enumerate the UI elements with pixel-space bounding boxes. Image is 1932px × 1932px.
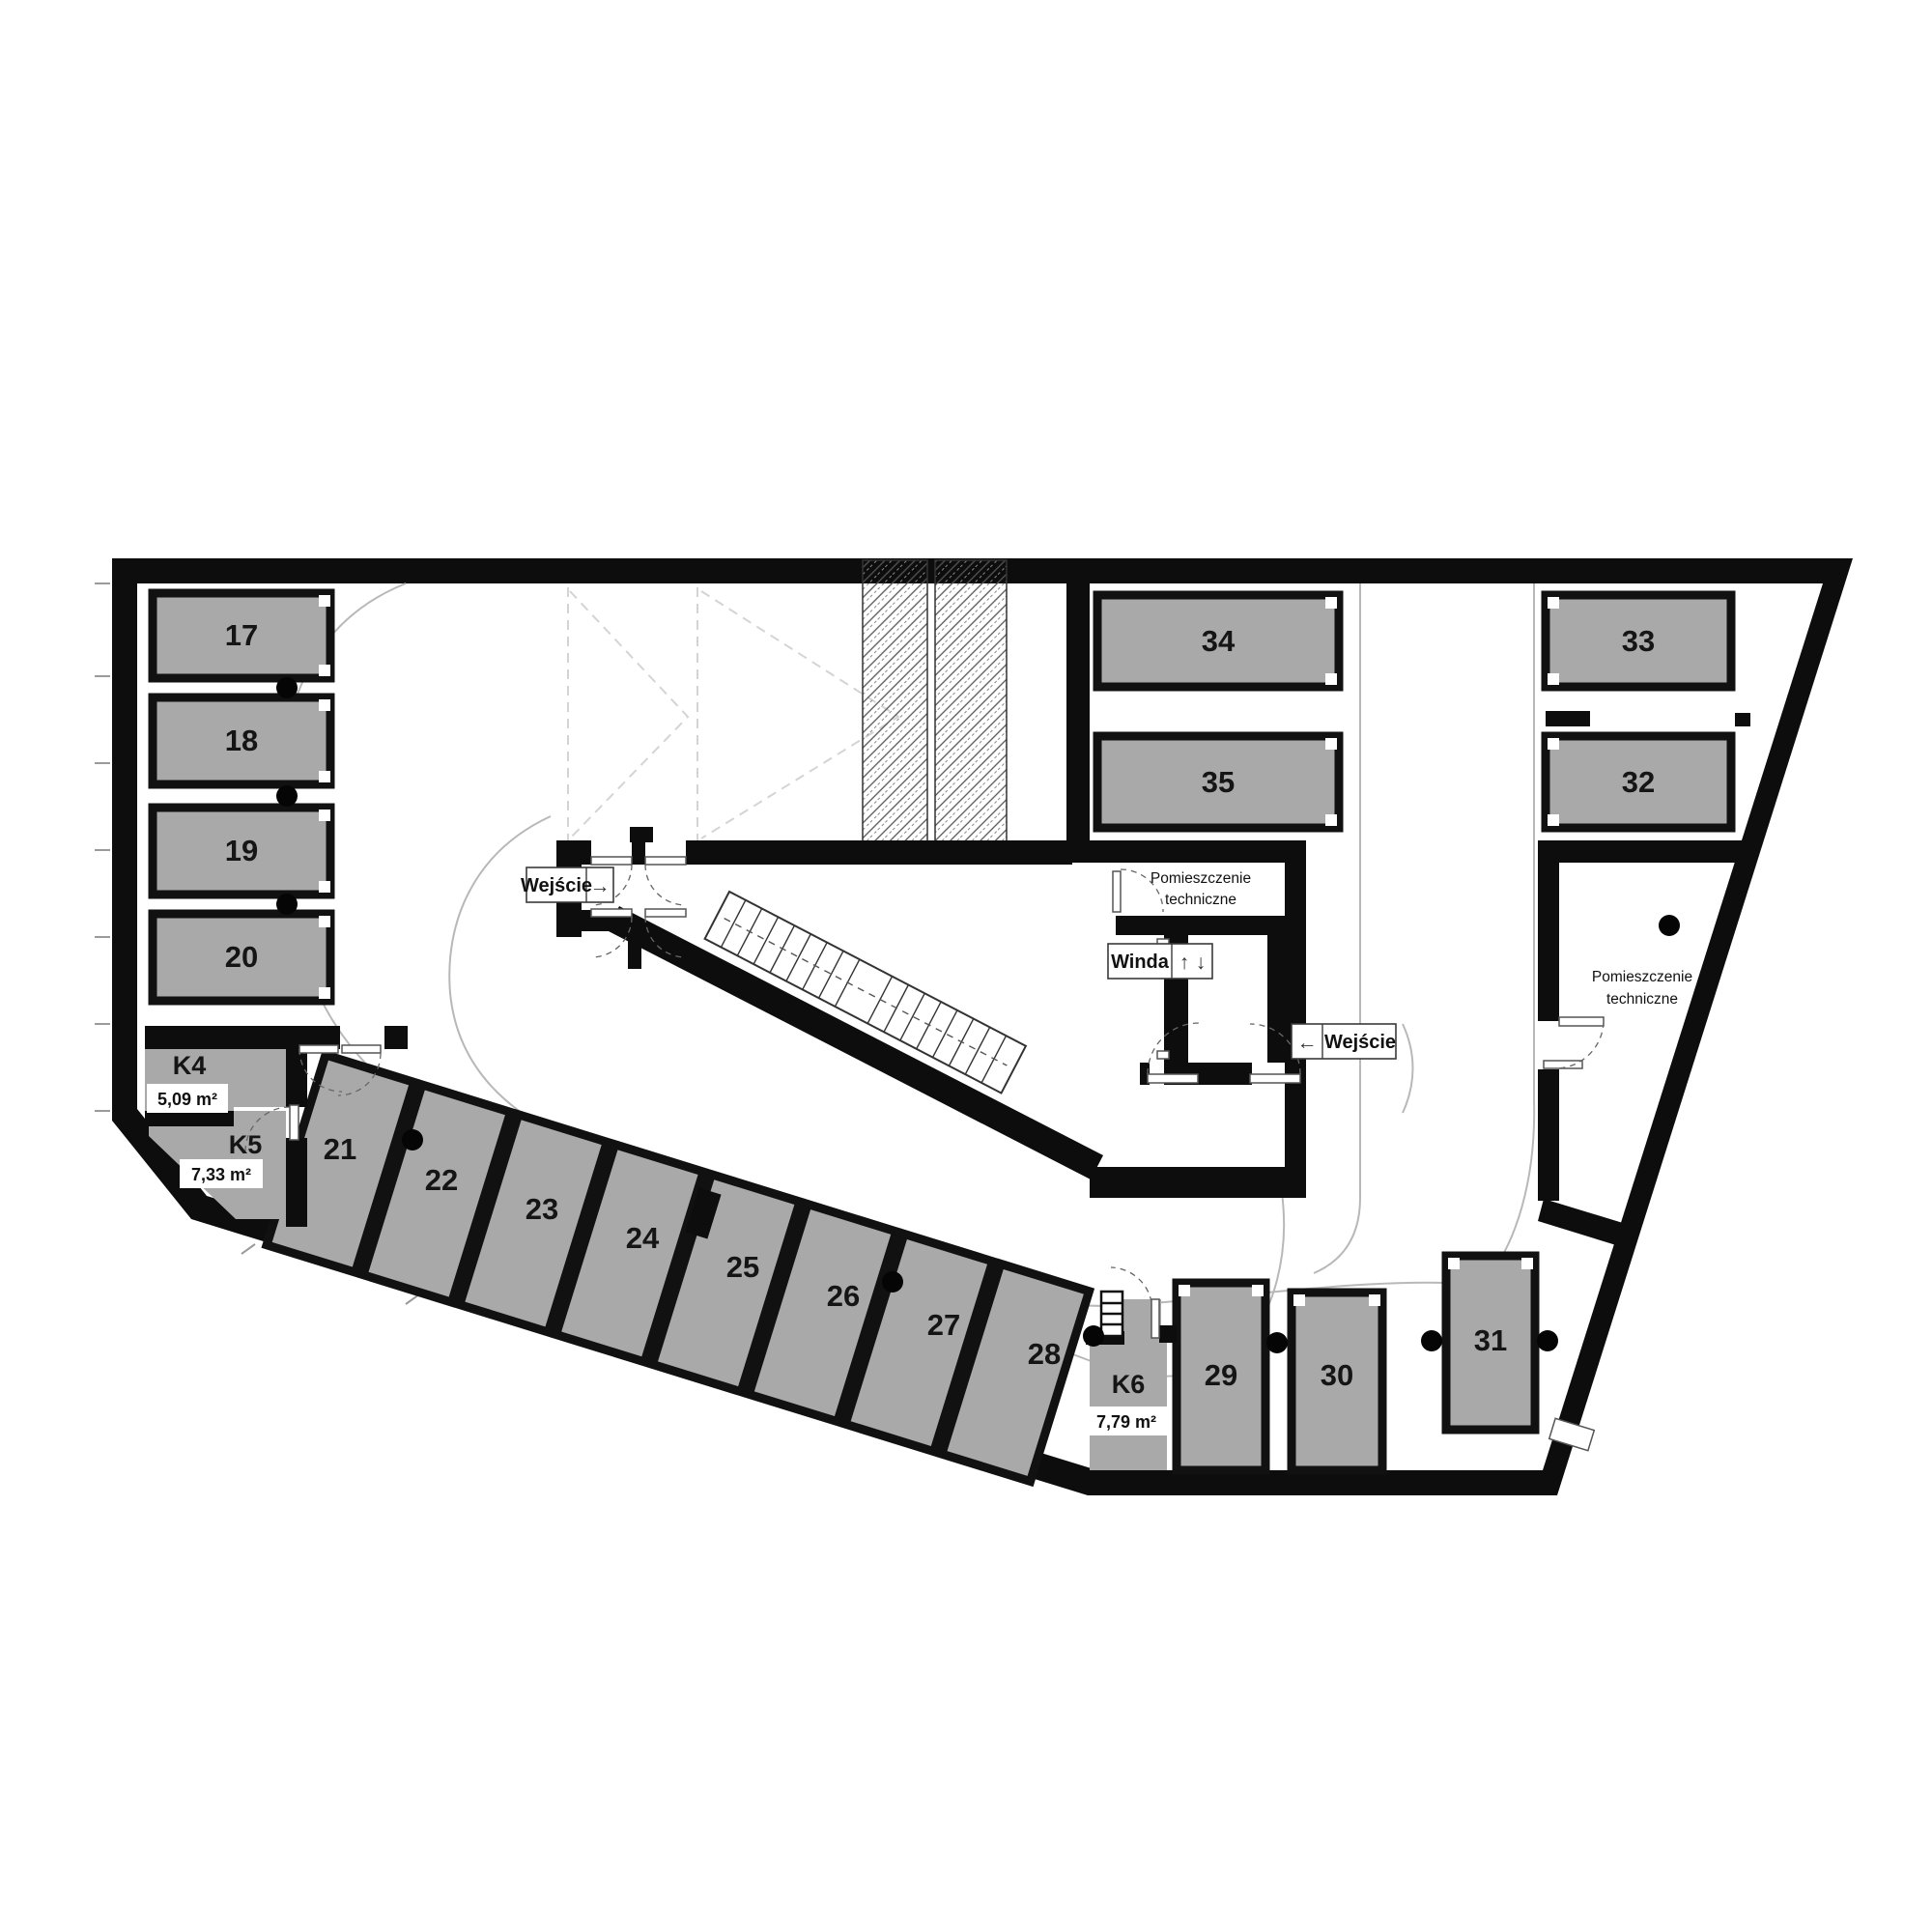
spot-label: 34: [1202, 624, 1236, 658]
spot-label: 25: [726, 1250, 759, 1284]
technical-room-right-label-2: techniczne: [1606, 991, 1678, 1008]
hatched-wall-left: [863, 560, 927, 842]
arrow-right-icon: →: [590, 875, 611, 897]
elevator-label-text: Winda: [1111, 952, 1170, 973]
door-leaf: [1148, 1074, 1198, 1083]
spot-label: 32: [1622, 765, 1655, 799]
parking-spot-35[interactable]: 35: [1097, 736, 1339, 828]
core-top-separator-wall: [1066, 560, 1090, 846]
arrow-up-icon: ↑: [1179, 952, 1190, 974]
column-dot: [882, 1271, 903, 1293]
entrance-right-text: Wejście: [1324, 1032, 1396, 1053]
parking-spot-31[interactable]: 31: [1446, 1256, 1535, 1430]
parking-spot-32[interactable]: 32: [1546, 736, 1731, 828]
area-value: 7,79 m²: [1096, 1412, 1156, 1432]
column-dot: [1659, 915, 1680, 936]
parking-spot-34[interactable]: 34: [1097, 595, 1339, 687]
door-leaf: [1151, 1299, 1159, 1338]
wall-stub: [1735, 713, 1750, 726]
spot-label: 28: [1028, 1337, 1061, 1371]
spot-label: 30: [1321, 1358, 1353, 1392]
door-leaf: [290, 1105, 298, 1140]
area-value: 7,33 m²: [191, 1165, 251, 1184]
technical-room-core-label-1: Pomieszczenie: [1151, 870, 1251, 887]
parking-spot-17[interactable]: 17: [153, 593, 330, 678]
column-dot: [276, 677, 298, 698]
spot-label: 20: [225, 940, 258, 974]
wall-stub: [1546, 711, 1590, 726]
area-value: 5,09 m²: [157, 1090, 217, 1109]
spot-label: 35: [1202, 765, 1235, 799]
entrance-label-left: Wejście →: [521, 867, 613, 902]
storage-label: K5: [229, 1130, 263, 1159]
arrow-left-icon: ←: [1297, 1032, 1318, 1054]
column-dot: [1537, 1330, 1558, 1351]
storage-label: K4: [173, 1051, 207, 1080]
spot-label: 19: [225, 834, 258, 867]
garage-floor-plan: Pomieszczenie techniczne Winda ↑ ↓ Wejśc…: [0, 0, 1932, 1932]
technical-room-right-label-1: Pomieszczenie: [1592, 969, 1692, 985]
ladder-icon: [1101, 1292, 1122, 1336]
elevator-door-mark: [1157, 1051, 1169, 1059]
column-dot: [1083, 1325, 1104, 1347]
spot-label: 29: [1205, 1358, 1237, 1392]
parking-spot-33[interactable]: 33: [1546, 595, 1731, 687]
door-leaf: [1559, 1017, 1604, 1026]
spot-label: 24: [626, 1221, 660, 1255]
parking-spot-19[interactable]: 19: [153, 808, 330, 895]
door-leaf: [645, 909, 686, 917]
entrance-left-text: Wejście: [521, 875, 592, 896]
spot-label: 26: [827, 1279, 860, 1313]
door-leaf: [591, 909, 632, 917]
entrance-label-right: ← Wejście: [1292, 1024, 1396, 1059]
spot-label: 18: [225, 724, 258, 757]
column-dot: [402, 1129, 423, 1151]
column-dot: [276, 785, 298, 807]
wall-bump: [630, 827, 653, 842]
storage-label: K6: [1112, 1370, 1146, 1399]
spot-label: 17: [225, 618, 258, 652]
parking-spot-30[interactable]: 30: [1292, 1293, 1382, 1470]
door-leaf: [1250, 1074, 1300, 1083]
spot-label: 21: [324, 1132, 356, 1166]
arrow-down-icon: ↓: [1196, 952, 1207, 974]
door-leaf: [1113, 871, 1121, 912]
spot-label: 33: [1622, 624, 1655, 658]
parking-spot-18[interactable]: 18: [153, 697, 330, 784]
column-dot: [1421, 1330, 1442, 1351]
spot-label: 27: [927, 1308, 960, 1342]
column-dot: [276, 894, 298, 915]
spot-label: 31: [1474, 1323, 1507, 1357]
spot-label: 23: [526, 1192, 558, 1226]
elevator-label: Winda ↑ ↓: [1108, 944, 1212, 979]
door-leaf: [591, 857, 632, 865]
spot-label: 22: [425, 1163, 458, 1197]
parking-spot-20[interactable]: 20: [153, 914, 330, 1001]
door-leaf: [645, 857, 686, 865]
technical-room-core-label-2: techniczne: [1165, 892, 1236, 908]
column-dot: [1266, 1332, 1288, 1353]
hatched-wall-right: [935, 560, 1007, 842]
parking-spot-29[interactable]: 29: [1177, 1283, 1265, 1470]
door-leaf: [342, 1045, 381, 1053]
door-leaf: [299, 1045, 338, 1053]
